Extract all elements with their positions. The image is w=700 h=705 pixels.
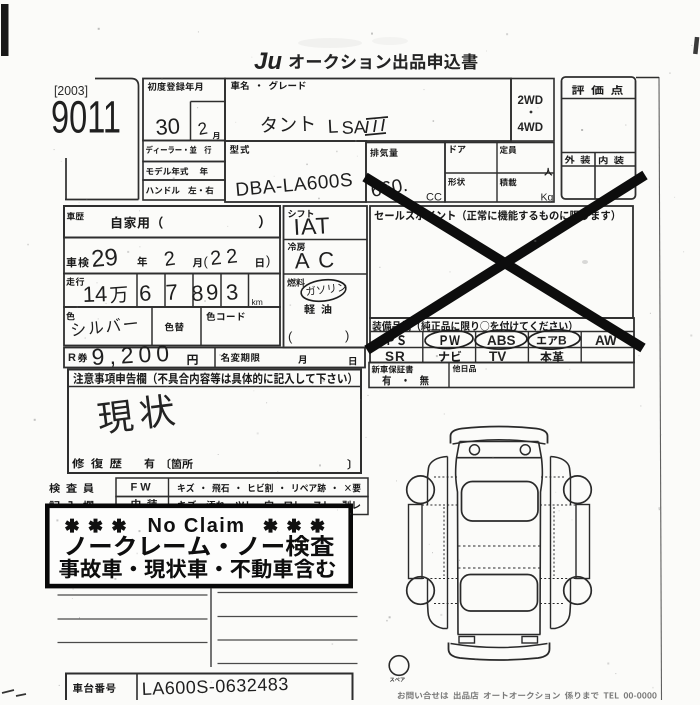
svg-text:SA: SA [341,117,366,138]
svg-text:): ) [266,253,270,268]
svg-text:9011: 9011 [51,92,121,143]
svg-text:3: 3 [225,279,239,305]
svg-text:Kg: Kg [541,192,554,204]
svg-text:8: 8 [191,281,204,306]
svg-text:(: ( [288,329,293,344]
svg-text:IAT: IAT [293,212,331,240]
svg-text:7: 7 [165,279,179,305]
svg-text:9,200: 9,200 [91,340,175,370]
svg-text:km: km [252,297,263,307]
svg-text:2WD: 2WD [518,95,544,107]
svg-text:14: 14 [82,281,107,307]
svg-text:22: 22 [209,245,243,270]
svg-text:30: 30 [155,113,181,140]
svg-text:Ju: Ju [254,48,282,75]
svg-text:ABS: ABS [487,333,516,348]
svg-text:A C: A C [294,247,336,273]
svg-text:29: 29 [90,244,119,273]
svg-text:B: B [558,334,567,348]
svg-text:F W: F W [131,482,152,494]
svg-text:6: 6 [138,280,152,306]
svg-text:CC: CC [426,192,442,204]
svg-text:(: ( [204,254,209,269]
svg-text:4WD: 4WD [518,122,544,134]
svg-text:L: L [327,116,339,138]
svg-text:): ) [345,328,349,343]
svg-text:9: 9 [205,279,219,305]
svg-text:R: R [68,352,76,364]
svg-text:No Claim: No Claim [148,515,246,537]
